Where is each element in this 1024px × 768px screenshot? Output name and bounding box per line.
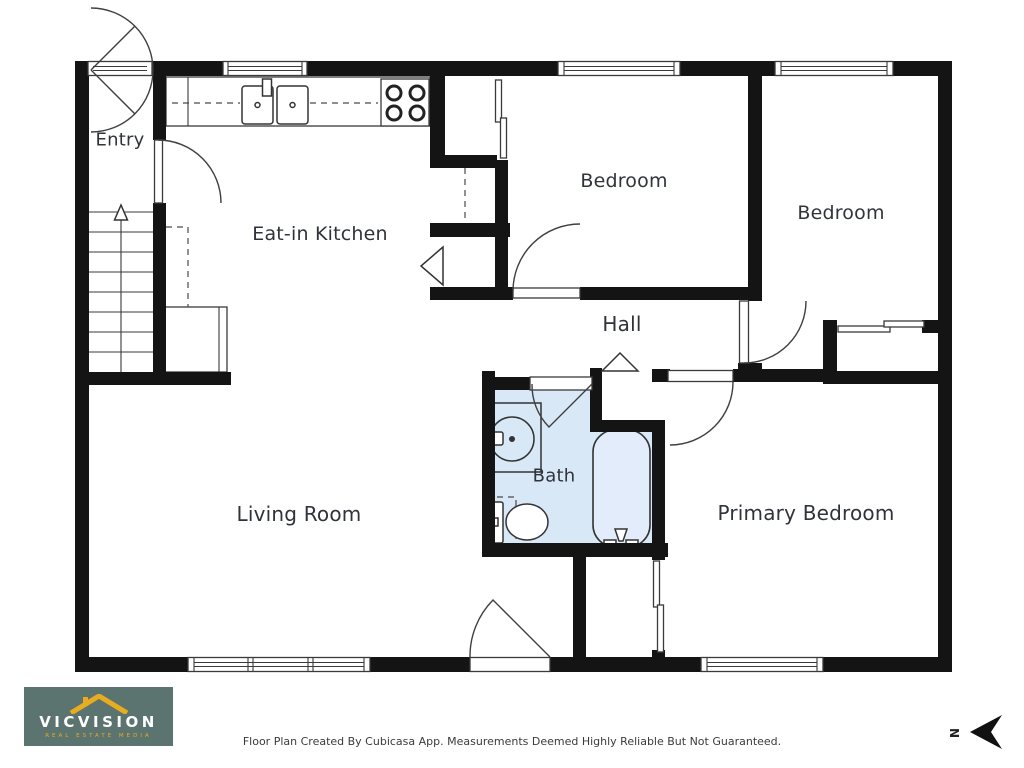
bathtub-icon	[593, 430, 650, 548]
north-compass: N	[946, 710, 1012, 756]
bedroom-right-window	[775, 62, 893, 76]
room-label-bedroom-right: Bedroom	[797, 202, 884, 224]
floor-plan-page: Entry Eat-in Kitchen Bedroom Bedroom Hal…	[0, 0, 1024, 768]
kitchen-closet-bifold-door	[421, 247, 443, 285]
bedroom-top-window	[558, 62, 680, 76]
front-door	[88, 8, 153, 132]
room-label-bedroom-top: Bedroom	[580, 170, 667, 192]
room-label-primary-bedroom: Primary Bedroom	[717, 501, 894, 525]
north-label: N	[947, 728, 961, 738]
room-label-kitchen: Eat-in Kitchen	[252, 223, 388, 245]
roof-icon	[64, 694, 134, 714]
bedroom-right-door	[740, 301, 807, 363]
primary-bedroom-door	[668, 371, 733, 446]
room-label-living-room: Living Room	[237, 502, 362, 526]
kitchen-window	[223, 62, 307, 76]
north-arrow-icon	[966, 712, 1006, 752]
primary-closet-slider	[654, 561, 664, 652]
primary-bedroom-window	[701, 658, 823, 672]
bedroom-top-closet-slider	[496, 80, 507, 158]
entry-kitchen-door	[155, 140, 222, 203]
room-label-bath: Bath	[533, 466, 576, 487]
bedroom-right-closet-slider	[838, 321, 924, 332]
room-label-hall: Hall	[602, 312, 641, 336]
logo-name: VICVISION	[39, 715, 158, 730]
living-room-window	[188, 658, 370, 672]
refrigerator-icon	[163, 227, 227, 372]
floor-plan-drawing	[0, 0, 1024, 768]
windows	[188, 62, 893, 672]
room-label-entry: Entry	[96, 130, 145, 151]
linen-closet-bifold-door	[602, 353, 638, 371]
staircase	[89, 205, 153, 372]
footer-disclaimer: Floor Plan Created By Cubicasa App. Meas…	[0, 735, 1024, 748]
living-room-back-door	[470, 600, 550, 672]
stove-icon	[381, 79, 429, 126]
bedroom-top-door	[513, 224, 580, 298]
